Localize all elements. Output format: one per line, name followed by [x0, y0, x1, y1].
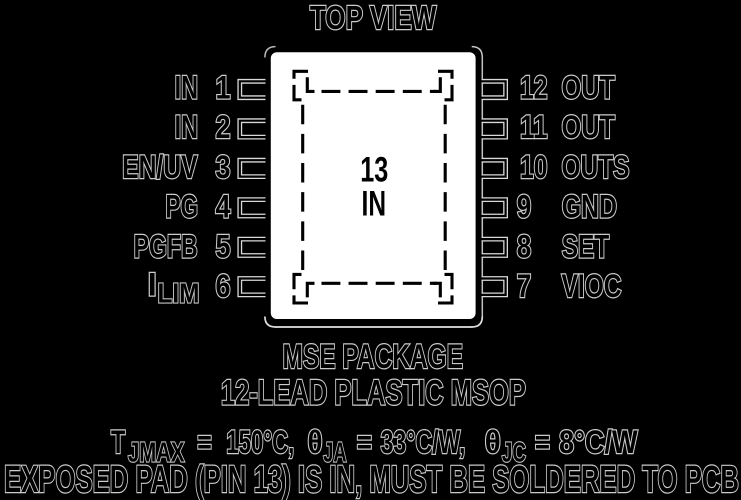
svg-text:VIOC: VIOC: [562, 268, 622, 304]
svg-text:13: 13: [360, 150, 388, 189]
svg-text:IN: IN: [362, 185, 387, 224]
svg-text:=: =: [535, 424, 550, 460]
svg-text:I: I: [148, 267, 157, 303]
svg-text:θ: θ: [308, 424, 323, 460]
svg-text:5: 5: [216, 228, 231, 264]
svg-text:33°C/W,: 33°C/W,: [381, 424, 466, 460]
svg-text:7: 7: [517, 268, 532, 304]
svg-text:11: 11: [520, 109, 548, 145]
svg-text:=: =: [197, 424, 212, 460]
svg-text:6: 6: [216, 268, 231, 304]
svg-text:2: 2: [216, 109, 231, 145]
svg-text:12: 12: [520, 70, 548, 106]
svg-text:1: 1: [216, 70, 231, 106]
svg-text:EXPOSED PAD (PIN 13) IS IN, MU: EXPOSED PAD (PIN 13) IS IN, MUST BE SOLD…: [4, 459, 739, 500]
svg-text:TOP VIEW: TOP VIEW: [310, 0, 437, 36]
svg-text:PGFB: PGFB: [134, 228, 198, 264]
svg-text:PG: PG: [166, 189, 199, 225]
svg-text:θ: θ: [485, 424, 501, 460]
svg-text:4: 4: [216, 189, 231, 225]
svg-text:150°C,: 150°C,: [226, 424, 294, 460]
svg-text:IN: IN: [175, 70, 198, 106]
svg-text:SET: SET: [562, 228, 610, 264]
svg-text:12-LEAD PLASTIC MSOP: 12-LEAD PLASTIC MSOP: [221, 373, 526, 413]
svg-text:OUT: OUT: [562, 109, 616, 145]
svg-text:EN/UV: EN/UV: [122, 149, 198, 185]
svg-text:10: 10: [520, 149, 548, 185]
svg-text:3: 3: [216, 149, 231, 185]
svg-text:9: 9: [517, 189, 532, 225]
svg-text:T: T: [111, 424, 126, 460]
svg-text:8: 8: [517, 228, 532, 264]
svg-text:OUT: OUT: [562, 70, 616, 106]
svg-text:IN: IN: [175, 109, 198, 145]
svg-text:8°C/W: 8°C/W: [559, 424, 638, 460]
svg-text:OUTS: OUTS: [562, 149, 630, 185]
svg-text:LIM: LIM: [158, 278, 200, 309]
svg-text:=: =: [357, 424, 372, 460]
svg-text:MSE PACKAGE: MSE PACKAGE: [283, 338, 464, 376]
svg-text:GND: GND: [562, 189, 617, 225]
